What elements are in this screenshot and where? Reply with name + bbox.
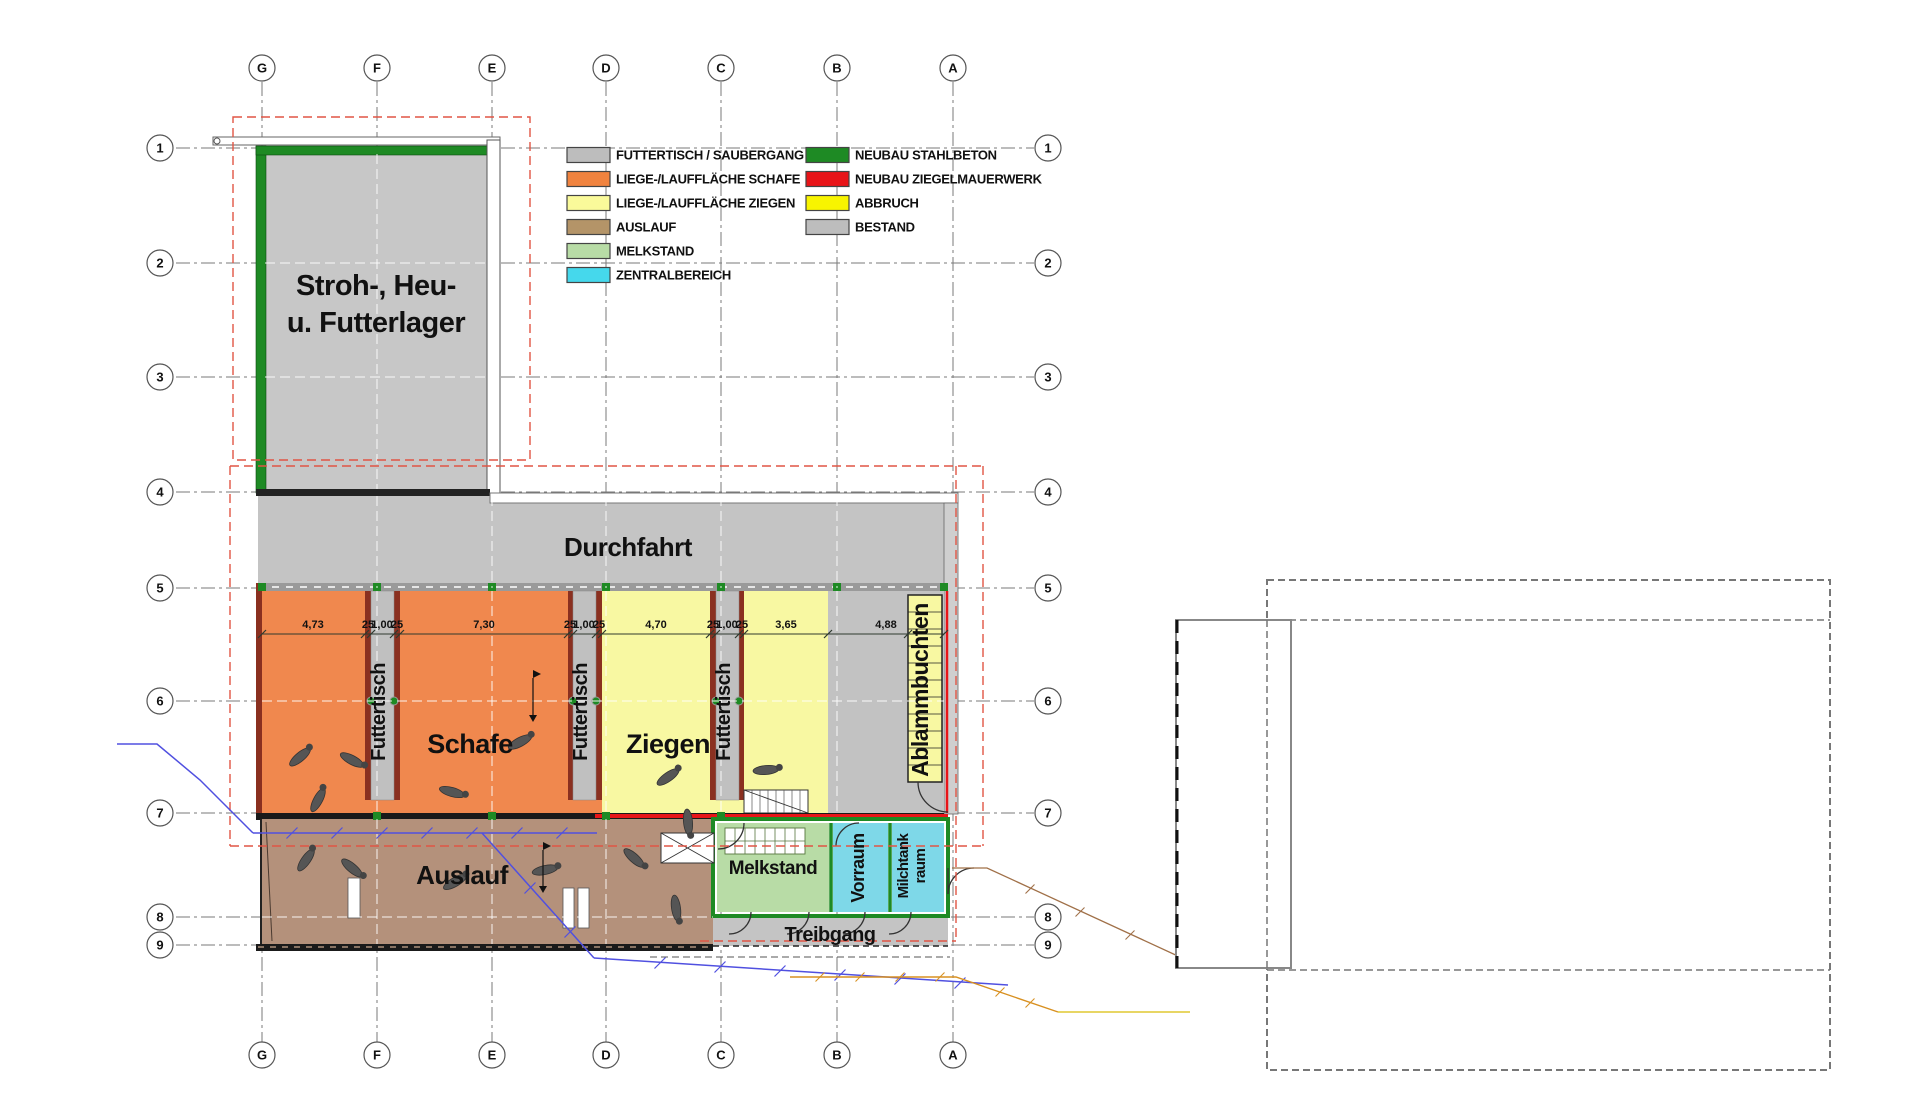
- grid-col-top-F-label: F: [373, 61, 381, 76]
- grid-row-right-4-label: 4: [1044, 485, 1052, 500]
- storage-wall-north-concrete: [256, 146, 490, 155]
- legend-swatch-liege-lauffl-che-ziegen: [567, 196, 610, 211]
- legend-swatch-melkstand: [567, 244, 610, 259]
- concrete-posts: [258, 583, 266, 591]
- grid-col-bottom-C-label: C: [716, 1048, 726, 1063]
- grid-col-top-C-label: C: [716, 61, 726, 76]
- grid-row-left-7-label: 7: [156, 806, 163, 821]
- dimension-label: 25: [593, 619, 605, 631]
- dimension-label: 1,00: [573, 619, 594, 631]
- storage-roof-node: [214, 138, 220, 144]
- grid-row-left-1-label: 1: [156, 141, 163, 156]
- grid-col-top-B-label: B: [832, 61, 841, 76]
- grid-col-top-E-label: E: [488, 61, 497, 76]
- dimension-label: 25: [391, 619, 403, 631]
- grid-col-top-D-label: D: [601, 61, 610, 76]
- label-schafe: Schafe: [427, 729, 513, 759]
- concrete-posts: [602, 812, 610, 820]
- grid-row-right-1-label: 1: [1044, 141, 1051, 156]
- label-durchfahrt: Durchfahrt: [564, 532, 693, 562]
- grid-col-bottom-A-label: A: [948, 1048, 958, 1063]
- drain-blue-west: [117, 744, 253, 833]
- concrete-posts: [717, 812, 725, 820]
- drain-label-box-1: [348, 878, 360, 918]
- label-vorraum: Vorraum: [848, 833, 868, 902]
- legend-label: AUSLAUF: [616, 220, 676, 235]
- grid-row-right-8-label: 8: [1044, 910, 1051, 925]
- dimension-label: 25: [736, 619, 748, 631]
- label-milchtank-line1: Milchtank: [895, 833, 912, 899]
- grid-col-bottom-B-label: B: [832, 1048, 841, 1063]
- utility-orange-ticks: [996, 988, 1005, 997]
- neighbor-annex: [1176, 620, 1291, 968]
- grid-row-left-2-label: 2: [156, 256, 163, 271]
- legend-swatch-liege-lauffl-che-schafe: [567, 172, 610, 187]
- stable-wall-west: [256, 583, 262, 813]
- label-futtertisch-1: Futtertisch: [368, 663, 390, 761]
- label-milchtank-line2: raum: [912, 849, 929, 884]
- grid-row-left-9-label: 9: [156, 938, 163, 953]
- concrete-posts: [488, 812, 496, 820]
- label-stroh-heu-line2: u. Futterlager: [287, 307, 466, 339]
- durchfahrt-roof-band: [490, 493, 958, 503]
- grid-row-right-9-label: 9: [1044, 938, 1051, 953]
- legend-label: NEUBAU STAHLBETON: [855, 148, 997, 163]
- dimension-label: 3,65: [775, 619, 796, 631]
- label-futtertisch-2: Futtertisch: [570, 663, 592, 761]
- storage-wall-west-concrete: [256, 146, 266, 493]
- grid-col-bottom-E-label: E: [488, 1048, 497, 1063]
- dimension-label: 4,88: [875, 619, 896, 631]
- legend-swatch-zentralbereich: [567, 268, 610, 283]
- grid-col-bottom-D-label: D: [601, 1048, 610, 1063]
- label-melkstand: Melkstand: [729, 858, 817, 879]
- door-arc-exterior-east: [948, 868, 974, 894]
- concrete-posts: [373, 812, 381, 820]
- utility-orange-south: [790, 977, 1058, 1012]
- drain-blue-south: [594, 958, 1008, 985]
- dimension-label: 7,30: [473, 619, 494, 631]
- legend-swatch-abbruch: [806, 196, 849, 211]
- storage-wall-east: [487, 140, 500, 493]
- label-treibgang: Treibgang: [784, 924, 875, 946]
- grid-col-bottom-G-label: G: [257, 1048, 267, 1063]
- concrete-posts: [940, 583, 948, 591]
- drain-label-box-3: [578, 888, 589, 928]
- legend-label: BESTAND: [855, 220, 915, 235]
- legend-swatch-neubau-ziegelmauerwerk: [806, 172, 849, 187]
- label-ziegen: Ziegen: [626, 729, 710, 759]
- label-auslauf: Auslauf: [416, 860, 509, 890]
- storage-wall-south: [256, 489, 490, 496]
- grid-col-bottom-F-label: F: [373, 1048, 381, 1063]
- utility-brown-east: [952, 868, 1180, 962]
- grid-row-right-2-label: 2: [1044, 256, 1051, 271]
- floor-plan-canvas: 4,73251,00257,30251,00254,70251,00253,65…: [0, 0, 1920, 1112]
- grid-row-left-5-label: 5: [156, 581, 163, 596]
- legend-label: FUTTERTISCH / SAUBERGANG: [616, 148, 804, 163]
- grid-row-right-3-label: 3: [1044, 370, 1051, 385]
- label-ablammbuchten: Ablammbuchten: [907, 603, 933, 777]
- drain-blue-ticks: [895, 974, 906, 985]
- legend-label: MELKSTAND: [616, 244, 694, 259]
- legend-label: LIEGE-/LAUFFLÄCHE ZIEGEN: [616, 196, 795, 211]
- grid-row-left-4-label: 4: [156, 485, 164, 500]
- grid-col-top-A-label: A: [948, 61, 958, 76]
- grid-row-right-5-label: 5: [1044, 581, 1051, 596]
- cad-floor-plan-page: 4,73251,00257,30251,00254,70251,00253,65…: [0, 0, 1920, 1112]
- legend-label: NEUBAU ZIEGELMAUERWERK: [855, 172, 1043, 187]
- dimension-label: 1,00: [371, 619, 392, 631]
- grid-row-left-8-label: 8: [156, 910, 163, 925]
- legend-label: LIEGE-/LAUFFLÄCHE SCHAFE: [616, 172, 801, 187]
- label-stroh-heu-line1: Stroh-, Heu-: [296, 270, 456, 302]
- neighbor-building-outline: [1267, 580, 1830, 1070]
- grid-row-right-6-label: 6: [1044, 694, 1051, 709]
- legend-swatch-auslauf: [567, 220, 610, 235]
- legend-swatch-bestand: [806, 220, 849, 235]
- storage-roof-edge: [213, 137, 500, 145]
- grid-row-right-7-label: 7: [1044, 806, 1051, 821]
- grid-row-left-6-label: 6: [156, 694, 163, 709]
- legend-swatch-futtertisch-saubergang: [567, 148, 610, 163]
- legend-label: ZENTRALBEREICH: [616, 268, 731, 283]
- legend-label: ABBRUCH: [855, 196, 919, 211]
- grid-row-left-3-label: 3: [156, 370, 163, 385]
- legend-swatch-neubau-stahlbeton: [806, 148, 849, 163]
- dimension-label: 4,70: [645, 619, 666, 631]
- dimension-label: 1,00: [716, 619, 737, 631]
- dimension-label: 4,73: [302, 619, 323, 631]
- drain-label-box-2: [563, 888, 574, 928]
- grid-col-top-G-label: G: [257, 61, 267, 76]
- label-futtertisch-3: Futtertisch: [713, 663, 735, 761]
